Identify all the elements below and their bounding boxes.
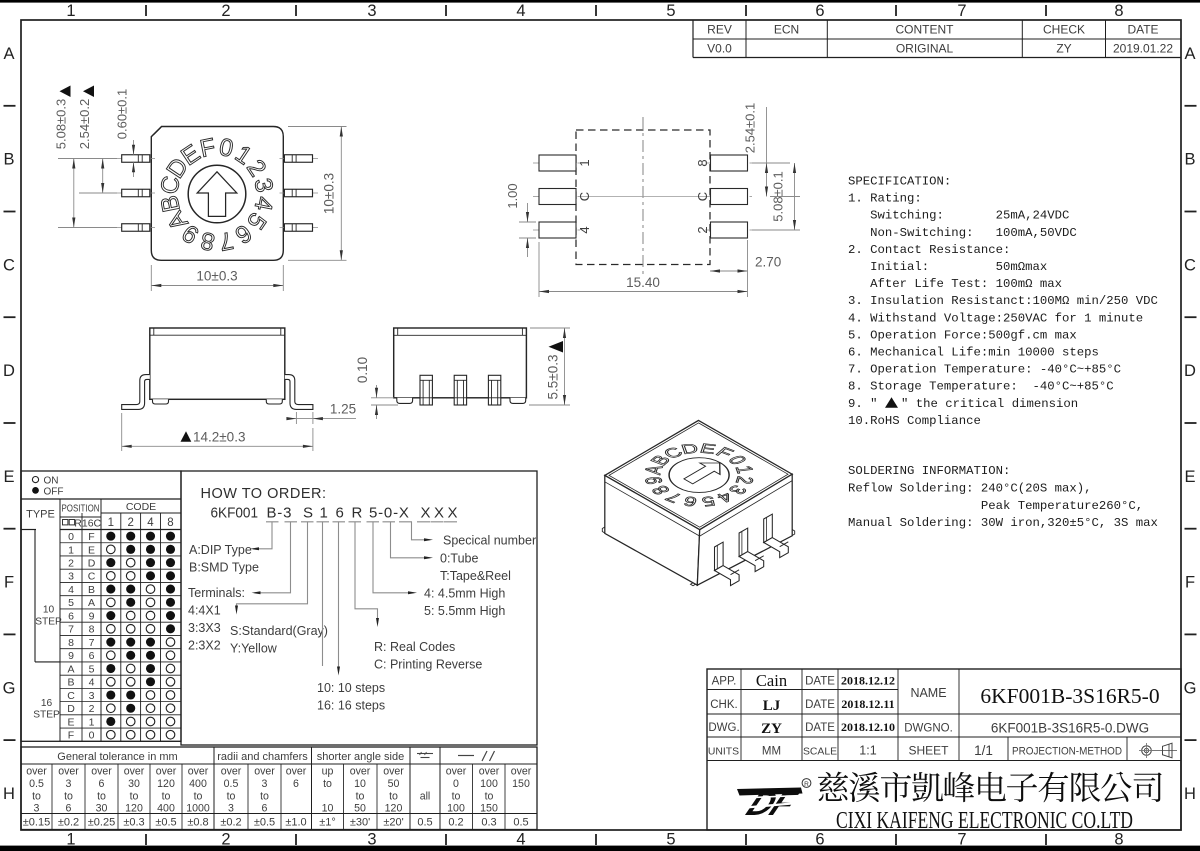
svg-text:6KF001: 6KF001	[211, 505, 259, 522]
svg-text:to: to	[130, 790, 139, 802]
svg-text:2: 2	[221, 831, 230, 849]
svg-text:F: F	[68, 730, 74, 742]
svg-text:±0.5: ±0.5	[254, 817, 275, 829]
svg-text:over: over	[254, 766, 275, 778]
svg-text:shorter angle side: shorter angle side	[317, 751, 404, 763]
svg-text:8: 8	[167, 517, 173, 529]
svg-text:7. Operation Temperature: -40°: 7. Operation Temperature: -40°C~+85°C	[848, 363, 1121, 377]
svg-text:9: 9	[89, 610, 95, 622]
svg-text:50: 50	[388, 778, 400, 790]
svg-text:2018.12.10: 2018.12.10	[841, 720, 895, 734]
svg-text:B:SMD Type: B:SMD Type	[189, 560, 259, 574]
svg-text:Terminals:: Terminals:	[188, 586, 245, 600]
svg-text:±0.2: ±0.2	[58, 817, 79, 829]
svg-text:CODE: CODE	[126, 501, 156, 513]
svg-text:B: B	[67, 677, 74, 689]
svg-text:6: 6	[262, 803, 268, 815]
svg-text:0: 0	[68, 531, 74, 543]
svg-text:DWGNO.: DWGNO.	[904, 723, 953, 735]
svg-text:F: F	[1185, 574, 1195, 592]
svg-text:C: C	[695, 192, 710, 201]
svg-text:1: 1	[577, 159, 592, 166]
svg-text:0.2: 0.2	[448, 817, 463, 829]
svg-text:5: 5	[666, 2, 675, 20]
svg-text:over: over	[221, 766, 242, 778]
svg-text:T:Tape&Reel: T:Tape&Reel	[440, 569, 511, 583]
svg-text:6. Mechanical Life:min 10000 s: 6. Mechanical Life:min 10000 steps	[848, 346, 1099, 360]
svg-text:10: 10	[354, 778, 366, 790]
svg-text:up: up	[322, 766, 334, 778]
svg-text:400: 400	[157, 803, 175, 815]
svg-text:0:Tube: 0:Tube	[440, 551, 479, 565]
svg-text:E: E	[1184, 468, 1195, 486]
svg-text:E: E	[3, 468, 14, 486]
svg-text:SHEET: SHEET	[908, 744, 949, 758]
svg-text:0.5: 0.5	[417, 817, 432, 829]
svg-text:D: D	[1184, 362, 1196, 380]
svg-text:1: 1	[66, 2, 75, 20]
svg-text:DATE: DATE	[1127, 23, 1158, 37]
svg-text:General tolerance in mm: General tolerance in mm	[57, 751, 177, 763]
svg-text:over: over	[188, 766, 209, 778]
svg-text:ON: ON	[44, 476, 59, 487]
svg-text:to: to	[227, 790, 236, 802]
svg-text:14.2±0.3: 14.2±0.3	[193, 430, 245, 445]
svg-text:6: 6	[336, 505, 344, 522]
svg-text:over: over	[350, 766, 371, 778]
svg-text:S:Standard(Gray): S:Standard(Gray)	[230, 624, 328, 638]
svg-text:0.10: 0.10	[355, 357, 370, 383]
svg-text:C: C	[67, 690, 75, 702]
svg-text:APP.: APP.	[712, 676, 737, 688]
svg-text:DWG.: DWG.	[708, 722, 739, 734]
svg-text:2: 2	[695, 226, 710, 233]
svg-text:±0.3: ±0.3	[123, 817, 144, 829]
svg-text:CHK.: CHK.	[710, 699, 737, 711]
svg-text:3: 3	[66, 778, 72, 790]
svg-text:F: F	[4, 574, 14, 592]
svg-text:3:3X3: 3:3X3	[188, 621, 221, 635]
svg-text:±1°: ±1°	[319, 817, 336, 829]
svg-text:PROJECTION-METHOD: PROJECTION-METHOD	[1012, 746, 1122, 758]
svg-text:over: over	[383, 766, 404, 778]
svg-text:After Life Test: 100mΩ max: After Life Test: 100mΩ max	[848, 277, 1062, 291]
svg-text:6KF001B-3S16R5-0: 6KF001B-3S16R5-0	[980, 684, 1159, 708]
svg-text:50: 50	[354, 803, 366, 815]
svg-text:ZY: ZY	[761, 721, 782, 737]
svg-text:0: 0	[453, 778, 459, 790]
svg-text:DATE: DATE	[805, 676, 835, 688]
svg-text:Non-Switching: 100mA,50VDC: Non-Switching: 100mA,50VDC	[848, 226, 1077, 240]
svg-text:D: D	[88, 558, 96, 570]
svg-text:±1.0: ±1.0	[285, 817, 306, 829]
svg-text:30: 30	[96, 803, 108, 815]
svg-text:A: A	[88, 597, 95, 609]
svg-text:6: 6	[815, 2, 824, 20]
svg-text:X: X	[448, 505, 458, 522]
svg-text:B: B	[88, 584, 95, 596]
svg-text:0.5: 0.5	[224, 778, 239, 790]
svg-text:3: 3	[228, 803, 234, 815]
svg-text:10±0.3: 10±0.3	[322, 173, 337, 214]
svg-text:8: 8	[695, 159, 710, 166]
svg-text:±20': ±20'	[383, 817, 403, 829]
svg-text:ORIGINAL: ORIGINAL	[896, 42, 954, 56]
svg-text:4: 4.5mm High: 4: 4.5mm High	[424, 586, 505, 600]
svg-text:to: to	[323, 778, 332, 790]
svg-text:4:4X1: 4:4X1	[188, 604, 221, 618]
svg-text:B: B	[3, 151, 14, 169]
svg-text:5: 5	[89, 663, 95, 675]
svg-text:all: all	[420, 790, 431, 802]
svg-text:ECN: ECN	[774, 23, 799, 37]
svg-text:TYPE: TYPE	[26, 509, 55, 521]
svg-text:Initial: 50mΩmax: Initial: 50mΩmax	[848, 260, 1047, 274]
svg-text:±0.5: ±0.5	[155, 817, 176, 829]
svg-text:1.00: 1.00	[505, 183, 520, 208]
svg-text:1: 1	[108, 517, 114, 529]
svg-text:C: C	[1184, 256, 1196, 274]
svg-text:3: 3	[367, 831, 376, 849]
svg-text:8: 8	[68, 637, 74, 649]
svg-text:16C: 16C	[82, 517, 102, 529]
svg-text:3: 3	[367, 2, 376, 20]
svg-text:5. Operation Force:500gf.cm ma: 5. Operation Force:500gf.cm max	[848, 328, 1077, 342]
svg-text:1: 1	[89, 716, 95, 728]
svg-text:E: E	[67, 716, 74, 728]
svg-text:1.25: 1.25	[330, 402, 356, 417]
svg-text:4: 4	[68, 584, 74, 596]
svg-text:3: 3	[89, 690, 95, 702]
svg-text:0: 0	[89, 730, 95, 742]
svg-text:5.08±0.1: 5.08±0.1	[771, 171, 786, 222]
svg-text:ZY: ZY	[1056, 42, 1071, 56]
svg-text:±0.8: ±0.8	[187, 817, 208, 829]
svg-text:over: over	[511, 766, 532, 778]
svg-text:over: over	[446, 766, 467, 778]
svg-text:±0.25: ±0.25	[88, 817, 115, 829]
svg-text:over: over	[91, 766, 112, 778]
svg-text:10: 10	[43, 605, 55, 616]
svg-text:to: to	[162, 790, 171, 802]
svg-text:C: Printing Reverse: C: Printing Reverse	[374, 657, 482, 671]
svg-text:±0.15: ±0.15	[23, 817, 50, 829]
svg-text:X: X	[421, 505, 431, 522]
svg-text:16: 16 steps: 16: 16 steps	[317, 698, 385, 712]
svg-text:over: over	[58, 766, 79, 778]
svg-text:G: G	[3, 679, 16, 697]
svg-text:″ the critical dimension: ″ the critical dimension	[901, 397, 1078, 411]
svg-text:Peak Temperature260°C,: Peak Temperature260°C,	[848, 499, 1143, 513]
svg-text:7: 7	[89, 637, 95, 649]
svg-text:D: D	[67, 703, 75, 715]
svg-text:Y:Yellow: Y:Yellow	[230, 641, 278, 655]
svg-text:2: 2	[127, 517, 133, 529]
svg-text:HOW TO ORDER:: HOW TO ORDER:	[201, 486, 327, 502]
svg-text:2019.01.22: 2019.01.22	[1113, 42, 1173, 56]
svg-text:2018.12.12: 2018.12.12	[841, 674, 895, 688]
svg-text:150: 150	[512, 778, 530, 790]
svg-text:5.08±0.3: 5.08±0.3	[54, 99, 69, 150]
svg-text:DATE: DATE	[805, 699, 835, 711]
svg-text:to: to	[194, 790, 203, 802]
svg-text:REV: REV	[707, 23, 732, 37]
svg-text:Manual Soldering: 30W iron,320: Manual Soldering: 30W iron,320±5°C, 3S m…	[848, 516, 1158, 530]
svg-text:4: 4	[147, 517, 154, 529]
svg-text:over: over	[26, 766, 47, 778]
svg-text:3: 3	[262, 778, 268, 790]
svg-text:120: 120	[385, 803, 403, 815]
svg-text:6: 6	[66, 803, 72, 815]
svg-text:0.5: 0.5	[29, 778, 44, 790]
svg-text:2. Contact Resistance:: 2. Contact Resistance:	[848, 243, 1010, 257]
svg-text:8: 8	[1114, 2, 1123, 20]
svg-text:10: 10	[322, 803, 334, 815]
svg-text:SPECIFICATION:: SPECIFICATION:	[848, 175, 951, 189]
svg-text:±0.2: ±0.2	[220, 817, 241, 829]
svg-text:R: Real Codes: R: Real Codes	[374, 640, 455, 654]
svg-text:STEP: STEP	[35, 617, 62, 628]
svg-text:H: H	[3, 785, 15, 803]
svg-text:to: to	[260, 790, 269, 802]
svg-text:6KF001B-3S16R5-0.DWG: 6KF001B-3S16R5-0.DWG	[991, 721, 1149, 736]
svg-text:B: B	[1184, 151, 1195, 169]
svg-text:±30': ±30'	[350, 817, 370, 829]
svg-text:C: C	[3, 256, 15, 274]
svg-text:9. ″: 9. ″	[848, 397, 878, 411]
svg-text:CONTENT: CONTENT	[896, 23, 955, 37]
svg-text:100: 100	[447, 803, 465, 815]
svg-text:1:1: 1:1	[859, 744, 876, 758]
svg-text:2: 2	[221, 2, 230, 20]
svg-text:2.54±0.2: 2.54±0.2	[77, 99, 92, 150]
svg-text:Switching: 25mA,24VDC: Switching: 25mA,24VDC	[848, 209, 1069, 223]
svg-text:to: to	[97, 790, 106, 802]
svg-text:3. Insulation Resistanct:100MΩ: 3. Insulation Resistanct:100MΩ min/250 V…	[848, 294, 1158, 308]
svg-text:15.40: 15.40	[626, 275, 660, 290]
svg-text:A: A	[3, 45, 14, 63]
svg-text:to: to	[452, 790, 461, 802]
svg-text:B-3: B-3	[267, 505, 293, 522]
svg-text:D: D	[3, 362, 15, 380]
svg-text:10.RoHS Compliance: 10.RoHS Compliance	[848, 414, 981, 428]
svg-text:2018.12.11: 2018.12.11	[841, 697, 894, 711]
svg-text:to: to	[64, 790, 73, 802]
svg-text:6: 6	[99, 778, 105, 790]
svg-text:2: 2	[68, 558, 74, 570]
svg-text:1: 1	[66, 831, 75, 849]
svg-text:F: F	[88, 531, 94, 543]
svg-text:0.3: 0.3	[481, 817, 496, 829]
svg-text:C: C	[88, 571, 96, 583]
svg-text:4: 4	[516, 2, 525, 20]
svg-text:LJ: LJ	[763, 698, 781, 714]
svg-text:7: 7	[68, 624, 74, 636]
svg-text:120: 120	[125, 803, 143, 815]
svg-text:DATE: DATE	[805, 722, 835, 734]
svg-text:to: to	[32, 790, 41, 802]
svg-text:SOLDERING INFORMATION:: SOLDERING INFORMATION:	[848, 464, 1010, 478]
svg-text:1. Rating:: 1. Rating:	[848, 192, 922, 206]
svg-text:2.70: 2.70	[755, 255, 781, 270]
svg-text:10: 10 steps: 10: 10 steps	[317, 681, 385, 695]
svg-text:over: over	[156, 766, 177, 778]
svg-text:30: 30	[128, 778, 140, 790]
svg-text:to: to	[356, 790, 365, 802]
svg-text:2:3X2: 2:3X2	[188, 639, 221, 653]
svg-text:3: 3	[34, 803, 40, 815]
svg-text:Cain: Cain	[756, 671, 787, 690]
svg-text:7: 7	[957, 2, 966, 20]
svg-text:to: to	[485, 790, 494, 802]
svg-text:0.60±0.1: 0.60±0.1	[115, 89, 130, 140]
svg-text:5: 5.5mm High: 5: 5.5mm High	[424, 604, 505, 618]
svg-text:100: 100	[480, 778, 498, 790]
svg-text:S: S	[303, 505, 313, 522]
svg-text:150: 150	[480, 803, 498, 815]
svg-text:4: 4	[577, 226, 592, 233]
svg-text:POSITION: POSITION	[62, 504, 100, 515]
svg-text:to: to	[389, 790, 398, 802]
svg-text:4: 4	[516, 831, 525, 849]
svg-text:1: 1	[68, 544, 74, 556]
svg-text:R: R	[352, 505, 363, 522]
svg-text:1: 1	[320, 505, 328, 522]
svg-text:Reflow Soldering: 240°C(20S ma: Reflow Soldering: 240°C(20S max),	[848, 481, 1092, 495]
svg-text:1/1: 1/1	[974, 743, 993, 758]
svg-text:STEP: STEP	[33, 710, 60, 721]
svg-text:5-0-X: 5-0-X	[369, 505, 410, 522]
svg-text:X: X	[434, 505, 444, 522]
svg-text:5: 5	[68, 597, 74, 609]
svg-text:R: R	[804, 781, 809, 788]
svg-text:A: A	[67, 663, 74, 675]
svg-text:over: over	[286, 766, 307, 778]
svg-text:NAME: NAME	[910, 686, 946, 700]
svg-text:6: 6	[815, 831, 824, 849]
svg-text:9: 9	[68, 650, 74, 662]
svg-text:6: 6	[89, 650, 95, 662]
svg-text:MM: MM	[762, 746, 781, 758]
svg-text:UNITS: UNITS	[708, 747, 739, 758]
svg-text:1000: 1000	[186, 803, 210, 815]
svg-text:4. Withstand Voltage:250VAC fo: 4. Withstand Voltage:250VAC for 1 minute	[848, 311, 1143, 325]
svg-text:4: 4	[89, 677, 95, 689]
svg-text:16: 16	[41, 698, 53, 709]
svg-text:OFF: OFF	[44, 486, 64, 497]
svg-text:400: 400	[189, 778, 207, 790]
svg-text:120: 120	[157, 778, 175, 790]
svg-text:C: C	[577, 192, 592, 201]
svg-text:6: 6	[293, 778, 299, 790]
svg-text:5: 5	[666, 831, 675, 849]
svg-text:8: 8	[89, 624, 95, 636]
svg-text:G: G	[1184, 679, 1197, 697]
svg-text:10±0.3: 10±0.3	[196, 269, 237, 284]
svg-text:radii and chamfers: radii and chamfers	[217, 751, 308, 763]
svg-text:SCALE: SCALE	[803, 747, 837, 758]
svg-text:2: 2	[89, 703, 95, 715]
svg-text:3: 3	[68, 571, 74, 583]
svg-text:8. Storage Temperature: -40°C: 8. Storage Temperature: -40°C~+85°C	[848, 380, 1114, 394]
svg-text:over: over	[479, 766, 500, 778]
svg-text:CHECK: CHECK	[1043, 23, 1085, 37]
svg-text:A:DIP Type: A:DIP Type	[189, 543, 252, 557]
svg-text:H: H	[1184, 785, 1196, 803]
svg-text:Specical number: Specical number	[443, 533, 536, 547]
svg-text:CIXI KAIFENG ELECTRONIC CO.LTD: CIXI KAIFENG ELECTRONIC CO.LTD	[836, 807, 1133, 834]
svg-text:2.54±0.1: 2.54±0.1	[743, 103, 758, 154]
svg-text:5.5±0.3: 5.5±0.3	[546, 355, 561, 400]
svg-text:0.5: 0.5	[513, 817, 528, 829]
svg-text:6: 6	[68, 610, 74, 622]
svg-text:A: A	[1184, 45, 1195, 63]
svg-text:over: over	[124, 766, 145, 778]
svg-text:V0.0: V0.0	[707, 42, 732, 56]
svg-text:E: E	[88, 544, 95, 556]
